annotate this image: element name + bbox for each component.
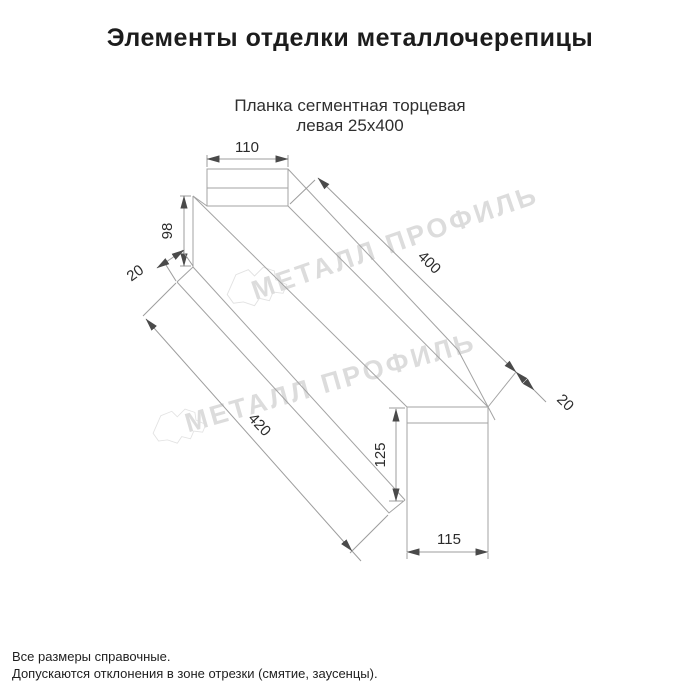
brand-watermark-text: МЕТАЛЛ ПРОФИЛЬ — [182, 326, 480, 438]
dimension-110: 110 — [207, 139, 288, 167]
dimension-20-far: 20 — [516, 372, 577, 415]
brand-watermark-text: МЕТАЛЛ ПРОФИЛЬ — [248, 179, 543, 305]
catalog-page: Элементы отделки металлочерепицы Планка … — [0, 0, 700, 700]
dimension-115: 115 — [407, 531, 488, 559]
dimension-420: 420 — [143, 283, 388, 561]
dimension-125: 125 — [372, 408, 405, 501]
dim-label-98: 98 — [159, 223, 176, 240]
footer-note-line2: Допускаются отклонения в зоне отрезки (с… — [12, 665, 652, 682]
dim-label-20-far: 20 — [553, 391, 577, 415]
footer-notes: Все размеры справочные. Допускаются откл… — [12, 648, 652, 682]
dim-label-125: 125 — [372, 442, 389, 467]
technical-drawing: МЕТАЛЛ ПРОФИЛЬ МЕТАЛЛ ПРОФИЛЬ — [0, 0, 700, 700]
dim-label-400: 400 — [414, 248, 444, 278]
dim-label-20-near: 20 — [124, 262, 147, 286]
dim-label-115: 115 — [437, 531, 461, 548]
dimension-20-near: 20 — [124, 250, 193, 285]
dim-label-110: 110 — [235, 139, 259, 156]
footer-note-line1: Все размеры справочные. — [12, 648, 652, 665]
